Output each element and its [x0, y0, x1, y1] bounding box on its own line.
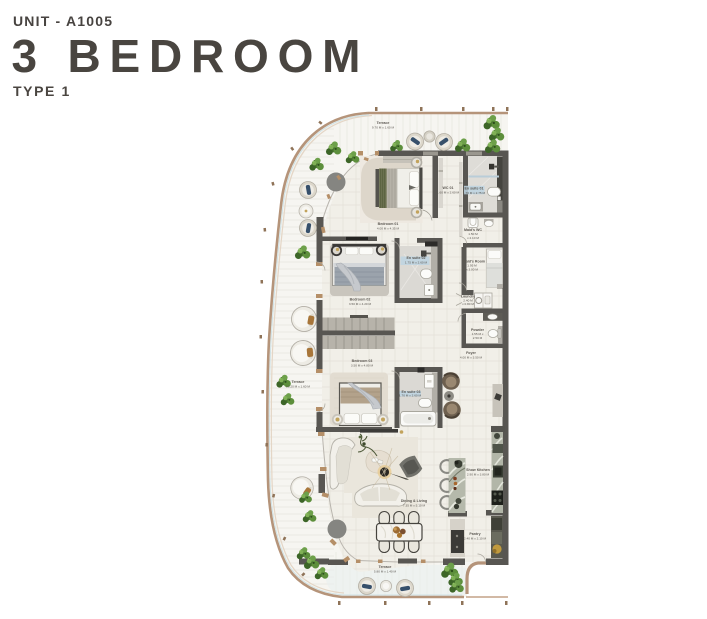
svg-text:Bedroom 01: Bedroom 01: [378, 222, 399, 226]
svg-text:Terrace: Terrace: [292, 380, 305, 384]
svg-text:Show Kitchen: Show Kitchen: [466, 468, 490, 472]
svg-text:3.50 M x 4.20 M: 3.50 M x 4.20 M: [349, 302, 372, 306]
svg-text:x 2.10 M: x 2.10 M: [467, 236, 479, 240]
svg-text:4.00 M x 4.35 M: 4.00 M x 4.35 M: [377, 227, 400, 231]
svg-text:9.70 M x 1.60 M: 9.70 M x 1.60 M: [372, 126, 395, 130]
svg-text:1.70 M x 2.60 M: 1.70 M x 2.60 M: [399, 393, 422, 397]
svg-text:7.35 M x 5.10 M: 7.35 M x 5.10 M: [403, 504, 426, 508]
svg-text:3.50 M x 4.80 M: 3.50 M x 4.80 M: [351, 364, 374, 368]
svg-text:En suite 02: En suite 02: [407, 256, 426, 260]
svg-text:16.20 M x 1.60 M: 16.20 M x 1.60 M: [286, 385, 310, 389]
svg-text:WC 01: WC 01: [443, 186, 454, 190]
svg-text:x 3.00 M: x 3.00 M: [466, 268, 478, 272]
svg-text:Pantry: Pantry: [469, 532, 480, 536]
svg-text:4.00 M x 3.50 M: 4.00 M x 3.50 M: [460, 355, 483, 359]
svg-text:Terrace: Terrace: [377, 121, 390, 125]
svg-text:Bedroom 03: Bedroom 03: [352, 359, 373, 363]
svg-text:2.40 M x 2.10 M: 2.40 M x 2.10 M: [464, 537, 487, 541]
svg-text:1.70 M x 2.75 M: 1.70 M x 2.75 M: [463, 191, 486, 195]
svg-text:Terrace: Terrace: [379, 565, 392, 569]
svg-text:Bedroom 02: Bedroom 02: [350, 298, 371, 302]
svg-text:x 0.80 M: x 0.80 M: [462, 302, 474, 306]
svg-text:1.75 M x 2.60 M: 1.75 M x 2.60 M: [405, 261, 428, 265]
svg-text:5.80 M x 1.40 M: 5.80 M x 1.40 M: [374, 570, 397, 574]
svg-text:1.60 M x 2.60 M: 1.60 M x 2.60 M: [437, 191, 460, 195]
svg-text:2.50 M: 2.50 M: [473, 336, 483, 340]
svg-text:Dining & Living: Dining & Living: [401, 499, 427, 503]
svg-text:2.90 M x 3.80 M: 2.90 M x 3.80 M: [467, 473, 490, 477]
